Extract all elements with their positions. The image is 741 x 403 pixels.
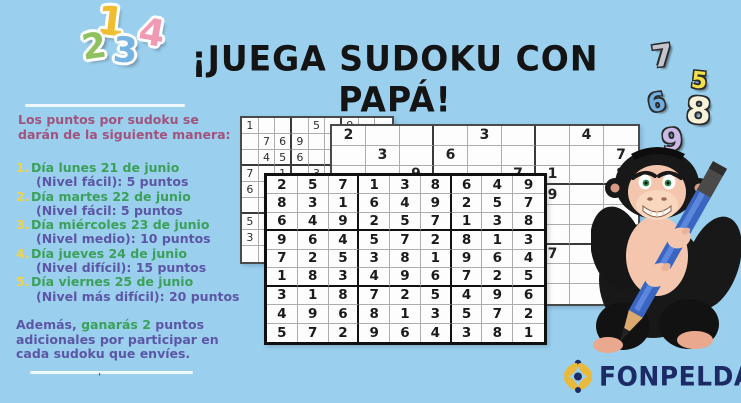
sudoku-cell: 9	[482, 287, 513, 305]
sudoku-cell	[400, 126, 434, 146]
points-schedule-list: 1. Día lunes 21 de junio (Nivel fácil): …	[16, 161, 246, 304]
sudoku-cell: 2	[390, 287, 421, 305]
sudoku-cell: 5	[452, 305, 483, 323]
sudoku-cell: 5	[267, 324, 298, 342]
decorative-number-2: 2	[80, 28, 109, 66]
sudoku-cell	[259, 118, 276, 134]
sudoku-cell: 6	[329, 305, 360, 323]
fonpeldar-logo-text: FONPELDAR	[599, 361, 741, 391]
list-item: 4. Día jueves 24 de junio (Nivel difícil…	[16, 247, 246, 276]
sudoku-cell	[309, 134, 326, 150]
list-item-level: (Nivel fácil): 5 puntos	[36, 174, 188, 189]
list-item-number: 5.	[16, 275, 31, 304]
sudoku-cell: 3	[298, 194, 329, 212]
divider-line-top	[25, 104, 185, 107]
sudoku-cell: 7	[452, 268, 483, 286]
sudoku-cell	[468, 146, 502, 166]
sudoku-cell: 6	[421, 268, 452, 286]
list-item-day: Día lunes 21 de junio	[31, 160, 179, 175]
list-item: 5. Día viernes 25 de junio (Nivel más di…	[16, 275, 246, 304]
sudoku-cell: 2	[513, 305, 544, 323]
sudoku-cell	[434, 126, 468, 146]
list-item-number: 2.	[16, 190, 31, 219]
sudoku-cell: 3	[390, 176, 421, 194]
fonpeldar-pinwheel-icon	[560, 357, 596, 395]
sudoku-cell: 1	[390, 305, 421, 323]
list-item-day: Día jueves 24 de junio	[31, 246, 187, 261]
sudoku-cell: 3	[513, 231, 544, 249]
sudoku-cell: 2	[332, 126, 366, 146]
list-item-day: Día miércoles 23 de junio	[31, 217, 209, 232]
sudoku-cell: 1	[329, 194, 360, 212]
sudoku-cell: 2	[482, 268, 513, 286]
sudoku-cell: 9	[390, 268, 421, 286]
sudoku-cell: 7	[390, 231, 421, 249]
sudoku-cell: 7	[482, 305, 513, 323]
sudoku-cell: 2	[329, 324, 360, 342]
sudoku-cell: 6	[292, 150, 309, 166]
sudoku-cell: 6	[298, 231, 329, 249]
divider-line-bottom	[30, 371, 193, 374]
sudoku-cell: 8	[267, 194, 298, 212]
list-item: 1. Día lunes 21 de junio (Nivel fácil): …	[16, 161, 246, 190]
sudoku-cell: 3	[267, 287, 298, 305]
sudoku-cell: 5	[390, 213, 421, 231]
decorative-number-6: 6	[646, 88, 668, 116]
sudoku-cell: 1	[242, 118, 259, 134]
sudoku-cell: 5	[359, 231, 390, 249]
sudoku-cell	[502, 146, 536, 166]
decorative-number-8: 8	[685, 93, 713, 131]
list-item-number: 4.	[16, 247, 31, 276]
sudoku-cell: 2	[267, 176, 298, 194]
list-item: 2. Día martes 22 de junio (Nivel fácil: …	[16, 190, 246, 219]
sudoku-cell: 7	[242, 166, 259, 182]
sudoku-cell	[242, 150, 259, 166]
list-item-level: (Nivel difícil): 15 puntos	[36, 260, 206, 275]
sudoku-cell: 1	[359, 176, 390, 194]
sudoku-cell: 4	[298, 213, 329, 231]
sudoku-cell: 4	[329, 231, 360, 249]
sudoku-cell: 4	[421, 324, 452, 342]
sudoku-cell: 7	[329, 176, 360, 194]
sudoku-cell: 9	[359, 324, 390, 342]
sudoku-cell: 1	[452, 213, 483, 231]
sudoku-cell: 5	[298, 176, 329, 194]
sudoku-cell: 3	[421, 305, 452, 323]
bonus-points-text: Además, ganarás 2 puntos adicionales por…	[16, 318, 252, 362]
sudoku-cell: 3	[482, 213, 513, 231]
sudoku-cell: 9	[513, 176, 544, 194]
sudoku-cell: 1	[421, 250, 452, 268]
gorilla-mascot	[591, 138, 741, 353]
sudoku-cell	[275, 118, 292, 134]
list-item-day: Día martes 22 de junio	[31, 189, 191, 204]
sudoku-cell: 8	[298, 268, 329, 286]
points-intro-text: Los puntos por sudoku se darán de la sig…	[18, 113, 240, 142]
sudoku-cell: 5	[309, 118, 326, 134]
sudoku-cell: 4	[482, 176, 513, 194]
sudoku-cell: 7	[259, 134, 276, 150]
sudoku-cell: 3	[468, 126, 502, 146]
sudoku-cell: 6	[267, 213, 298, 231]
sudoku-cell: 7	[513, 194, 544, 212]
sudoku-cell: 5	[513, 268, 544, 286]
sudoku-cell: 4	[259, 150, 276, 166]
sudoku-cell	[400, 146, 434, 166]
list-item-number: 3.	[16, 218, 31, 247]
sudoku-cell: 3	[366, 146, 400, 166]
sudoku-cell: 4	[390, 194, 421, 212]
sudoku-cell: 6	[452, 176, 483, 194]
gorilla-right-foot	[677, 331, 713, 349]
sudoku-cell: 8	[359, 305, 390, 323]
sudoku-cell: 6	[242, 182, 259, 198]
sudoku-cell: 6	[359, 194, 390, 212]
sudoku-cell	[242, 134, 259, 150]
list-item-day: Día viernes 25 de junio	[31, 274, 193, 289]
sudoku-cell: 8	[329, 287, 360, 305]
sudoku-cell: 8	[390, 250, 421, 268]
sudoku-cell: 8	[482, 324, 513, 342]
sudoku-cell: 7	[267, 250, 298, 268]
sudoku-cell: 9	[329, 213, 360, 231]
sudoku-cell: 3	[359, 250, 390, 268]
sudoku-cell: 9	[421, 194, 452, 212]
decorative-number-3: 3	[112, 33, 139, 70]
gorilla-left-foot	[593, 337, 623, 353]
sudoku-cell	[242, 246, 259, 262]
sudoku-cell: 7	[421, 213, 452, 231]
sudoku-grid-solved-front: 2571386498316492576492571389645728137253…	[264, 173, 547, 345]
footnote-mark: '	[98, 372, 101, 383]
sudoku-cell: 6	[482, 250, 513, 268]
bonus-text-highlight: ganarás 2	[77, 317, 156, 332]
sudoku-cell: 2	[298, 250, 329, 268]
sudoku-cell: 5	[482, 194, 513, 212]
flyer-title: ¡JUEGA SUDOKU CON PAPÁ!	[156, 38, 634, 120]
sudoku-cell: 5	[275, 150, 292, 166]
sudoku-cell: 5	[421, 287, 452, 305]
sudoku-cell: 1	[513, 324, 544, 342]
list-item-level: (Nivel más difícil): 20 puntos	[36, 289, 239, 304]
sudoku-cell: 9	[298, 305, 329, 323]
sudoku-cell: 4	[452, 287, 483, 305]
sudoku-cell: 9	[452, 250, 483, 268]
list-item: 3. Día miércoles 23 de junio (Nivel medi…	[16, 218, 246, 247]
list-item-level: (Nivel medio): 10 puntos	[36, 231, 211, 246]
sudoku-cell: 2	[421, 231, 452, 249]
sudoku-cell	[536, 146, 570, 166]
sudoku-cell	[242, 198, 259, 214]
list-item-number: 1.	[16, 161, 31, 190]
sudoku-cell: 1	[482, 231, 513, 249]
sudoku-cell: 6	[390, 324, 421, 342]
sudoku-cell: 5	[329, 250, 360, 268]
sudoku-cell	[502, 126, 536, 146]
sudoku-cell: 5	[242, 214, 259, 230]
sudoku-cell: 4	[359, 268, 390, 286]
sudoku-cell: 9	[267, 231, 298, 249]
gorilla-nostril	[661, 197, 667, 201]
gorilla-nostril	[647, 197, 653, 201]
fonpeldar-logo: FONPELDAR	[560, 357, 741, 395]
sudoku-cell	[536, 126, 570, 146]
sudoku-cell: 2	[452, 194, 483, 212]
sudoku-cell: 4	[513, 250, 544, 268]
sudoku-cell: 7	[359, 287, 390, 305]
sudoku-cell	[309, 150, 326, 166]
sudoku-cell: 8	[421, 176, 452, 194]
sudoku-cell: 7	[298, 324, 329, 342]
sudoku-cell: 6	[434, 146, 468, 166]
sudoku-cell	[332, 146, 366, 166]
sudoku-cell: 3	[329, 268, 360, 286]
sudoku-cell	[292, 118, 309, 134]
sudoku-cell: 8	[452, 231, 483, 249]
sudoku-cell: 3	[452, 324, 483, 342]
decorative-number-7: 7	[650, 41, 675, 74]
flyer-background: ¡JUEGA SUDOKU CON PAPÁ! 1 2 3 4 7 5 6 8 …	[0, 0, 741, 403]
sudoku-cell: 4	[267, 305, 298, 323]
bonus-text-part1: Además,	[16, 317, 77, 332]
sudoku-cell: 6	[513, 287, 544, 305]
sudoku-cell: 1	[298, 287, 329, 305]
sudoku-cell: 9	[292, 134, 309, 150]
sudoku-cell: 2	[359, 213, 390, 231]
sudoku-cell	[366, 126, 400, 146]
sudoku-cell: 3	[242, 230, 259, 246]
sudoku-cell: 8	[513, 213, 544, 231]
list-item-level: (Nivel fácil: 5 puntos	[36, 203, 183, 218]
sudoku-cell: 6	[275, 134, 292, 150]
sudoku-cell: 1	[267, 268, 298, 286]
